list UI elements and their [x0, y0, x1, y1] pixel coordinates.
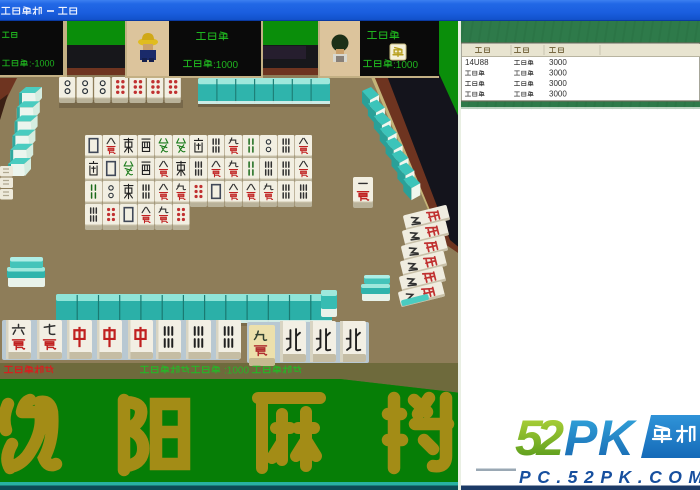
svg-text:3000: 3000	[549, 58, 567, 67]
svg-text:PC.52PK.COM: PC.52PK.COM	[519, 467, 700, 487]
svg-text:14U88: 14U88	[465, 58, 489, 67]
svg-text::1000: :1000	[224, 366, 249, 377]
svg-text::1000: :1000	[393, 60, 418, 71]
svg-text::1000: :1000	[213, 60, 238, 71]
svg-text:PK: PK	[564, 410, 638, 466]
svg-text:3000: 3000	[549, 79, 567, 88]
svg-text::-1000: :-1000	[29, 59, 55, 69]
svg-text:3000: 3000	[549, 69, 567, 78]
svg-text:52: 52	[515, 410, 564, 466]
svg-text:3000: 3000	[549, 90, 567, 99]
